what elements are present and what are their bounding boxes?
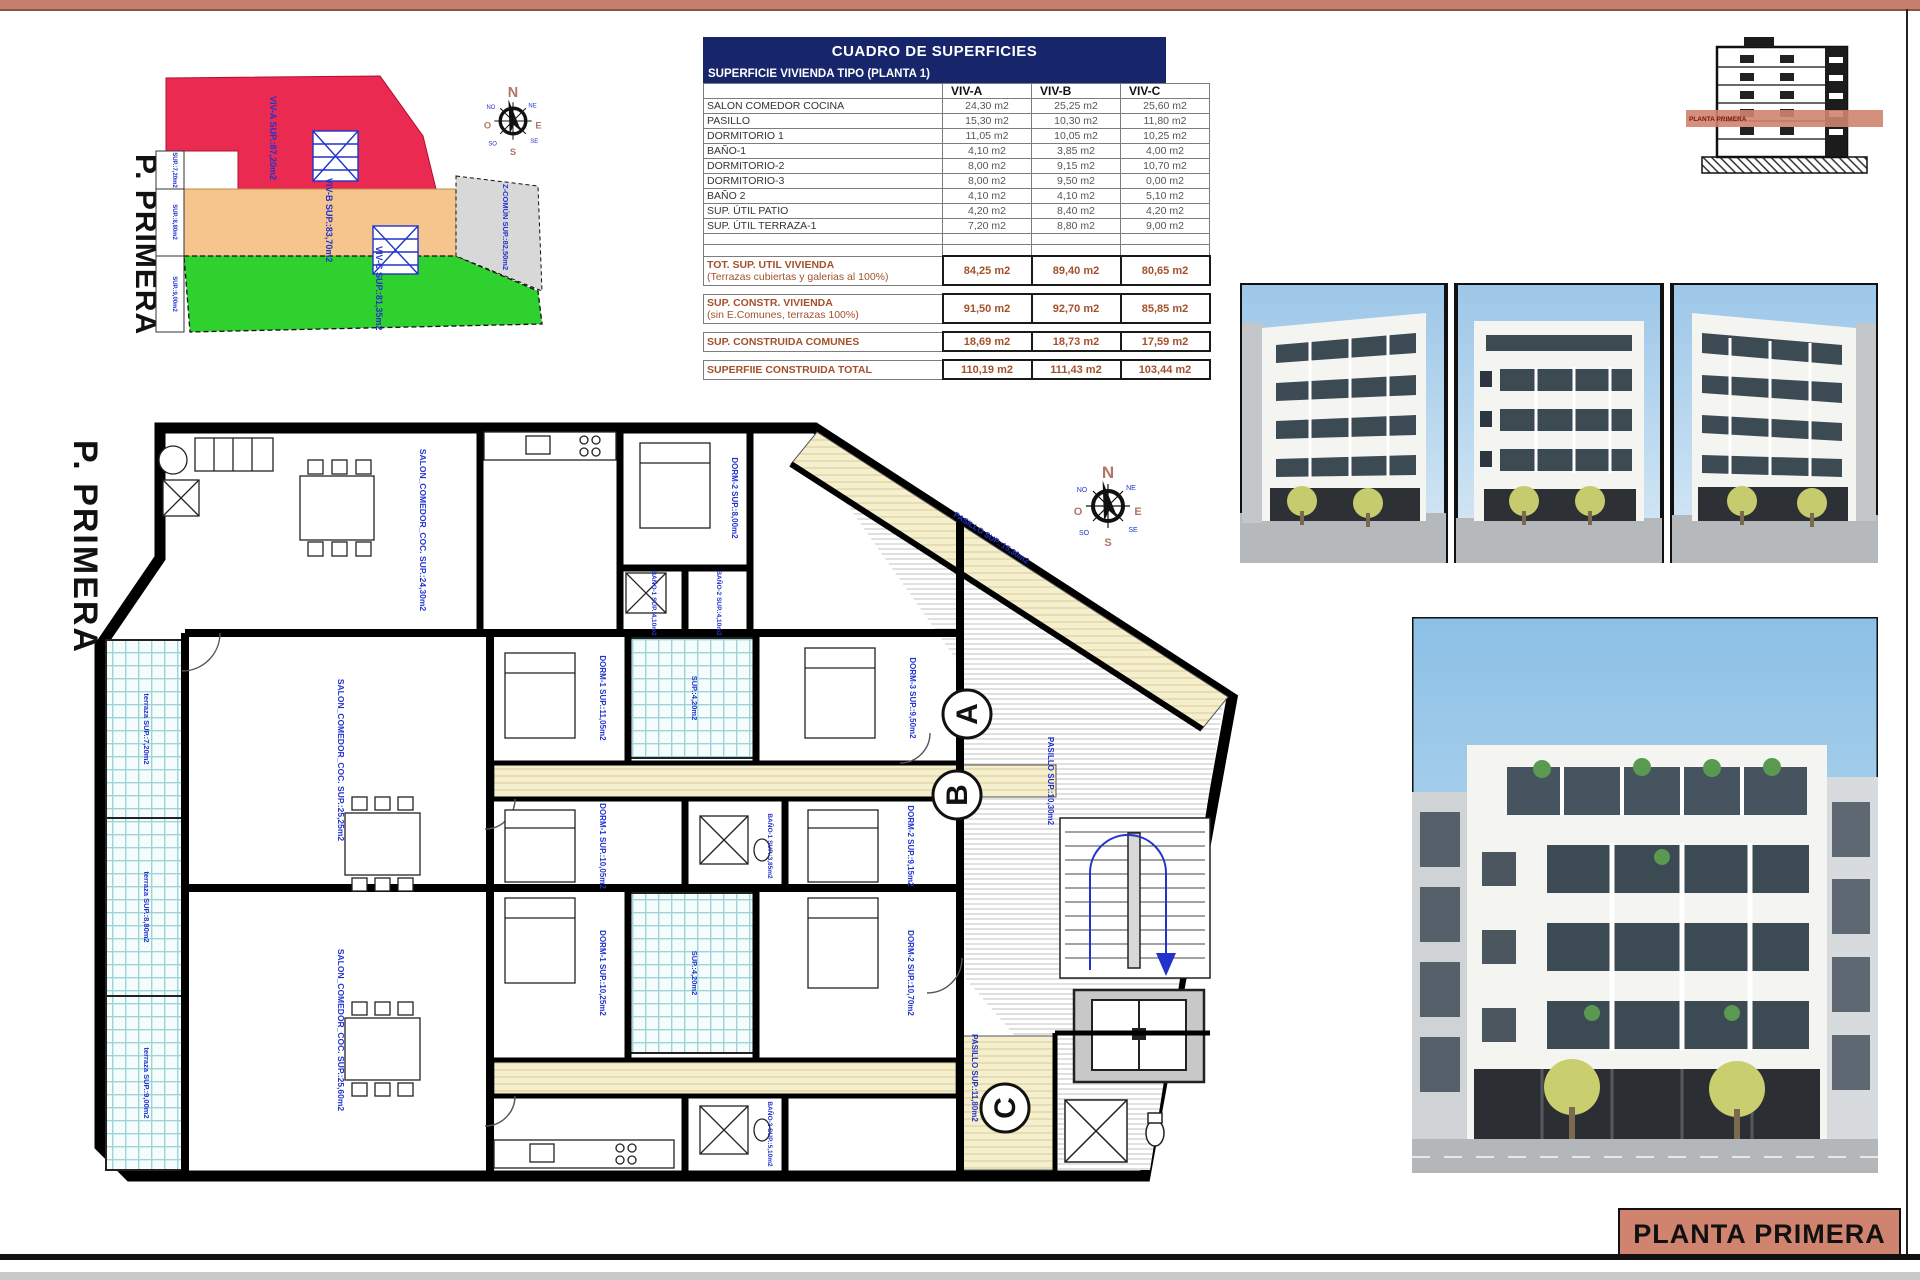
section-drawing: PLANTA PRIMERA [1682, 33, 1887, 183]
table-subtitle: SUPERFICIE VIVIENDA TIPO (PLANTA 1) [703, 65, 1166, 83]
table-row: BAÑO-14,10 m23,85 m24,00 m2 [704, 144, 1210, 159]
stair-symbol-1 [313, 131, 358, 181]
svg-text:O: O [1074, 506, 1083, 518]
table-row: PASILLO15,30 m210,30 m211,80 m2 [704, 114, 1210, 129]
title-block: PLANTA PRIMERA [1618, 1208, 1901, 1260]
table-row: DORMITORIO-28,00 m29,15 m210,70 m2 [704, 159, 1210, 174]
svg-text:DORM-2 SUP.:9,15m2: DORM-2 SUP.:9,15m2 [906, 805, 915, 887]
svg-text:SO: SO [488, 142, 497, 148]
staircase [1060, 818, 1210, 978]
zone-label-viv-b: VIV-B SUP.:83,70m2 [324, 178, 334, 262]
facade-render-center [1456, 283, 1662, 563]
svg-text:E: E [535, 121, 541, 131]
zone-label-viv-c: VIV-C SUP.:81,35m2 [374, 246, 384, 330]
col-viv-b: VIV-B [1032, 84, 1121, 99]
svg-text:SALON_COMEDOR_COC. SUP.:25,25: SALON_COMEDOR_COC. SUP.:25,25m2 [336, 679, 346, 842]
svg-text:terraza SUP.:9,00m2: terraza SUP.:9,00m2 [142, 1047, 151, 1118]
table-row: SUP. ÚTIL TERRAZA-17,20 m28,80 m29,00 m2 [704, 219, 1210, 234]
svg-text:N: N [1102, 463, 1114, 482]
svg-text:DORM-1 SUP.:11,05m2: DORM-1 SUP.:11,05m2 [598, 655, 607, 741]
key-edge-label-2: SUP.:8,80m2 [171, 204, 177, 240]
table-total-row: SUP. CONSTRUIDA COMUNES 18,69 m218,73 m2… [704, 332, 1210, 351]
svg-text:NO: NO [486, 105, 495, 111]
compass-rose: N E S O NE SE SO NO [484, 85, 542, 157]
plan-side-label: P. PRIMERA [66, 440, 104, 654]
entry-circle-a: A [951, 703, 984, 725]
svg-text:SUP.:4,20m2: SUP.:4,20m2 [690, 951, 699, 995]
svg-text:NE: NE [1126, 485, 1136, 492]
svg-text:SALON_COMEDOR_COC. SUP.:25,60: SALON_COMEDOR_COC. SUP.:25,60m2 [336, 949, 346, 1112]
entry-circle-b: B [941, 784, 974, 806]
table-total-row: SUP. CONSTR. VIVIENDA(sin E.Comunes, ter… [704, 294, 1210, 323]
table-row: DORMITORIO 111,05 m210,05 m210,25 m2 [704, 129, 1210, 144]
col-viv-a: VIV-A [943, 84, 1032, 99]
section-ground [1702, 157, 1867, 173]
svg-text:BAÑO-1 SUP.:4,10m2: BAÑO-1 SUP.:4,10m2 [650, 570, 659, 636]
svg-text:BAÑO-2 SUP.:5,10m2: BAÑO-2 SUP.:5,10m2 [766, 1101, 775, 1167]
sheet-right-border [1906, 9, 1908, 1254]
top-accent-bar [0, 0, 1920, 11]
entry-circle-c: C [989, 1097, 1022, 1119]
svg-text:BAÑO-1 SUP.:3,85m2: BAÑO-1 SUP.:3,85m2 [766, 813, 775, 879]
svg-text:SUP.:4,20m2: SUP.:4,20m2 [690, 676, 699, 720]
drawing-sheet: P. PRIMERA SUP.:7,20m2 SUP.:8,80m2 SUP.:… [0, 0, 1920, 1280]
svg-text:DORM-3 SUP.:9,50m2: DORM-3 SUP.:9,50m2 [908, 657, 917, 739]
col-viv-c: VIV-C [1121, 84, 1210, 99]
elevator [1074, 990, 1204, 1082]
compass-rose-plan: N E S O NE SE SO NO [1074, 463, 1142, 549]
svg-text:E: E [1134, 506, 1141, 518]
svg-text:NO: NO [1077, 487, 1088, 494]
table-row: SALON COMEDOR COCINA24,30 m225,25 m225,6… [704, 99, 1210, 114]
table-total-row: SUPERFIIE CONSTRUIDA TOTAL 110,19 m2111,… [704, 360, 1210, 379]
svg-text:PASILLO SUP.:11,80m2: PASILLO SUP.:11,80m2 [970, 1034, 979, 1122]
section-band-label: PLANTA PRIMERA [1689, 116, 1747, 123]
svg-text:terraza SUP.:7,20m2: terraza SUP.:7,20m2 [142, 693, 151, 764]
sheet-bottom-border [0, 1254, 1920, 1260]
svg-text:S: S [510, 147, 516, 157]
table-row: SUP. ÚTIL PATIO4,20 m28,40 m24,20 m2 [704, 204, 1210, 219]
svg-text:SO: SO [1079, 530, 1090, 537]
facade-renders-strip [1240, 283, 1878, 563]
zone-viv-a [166, 76, 436, 189]
facade-render-large [1412, 617, 1878, 1173]
facade-render-right [1672, 283, 1878, 563]
floor-plan: P. PRIMERA [60, 418, 1240, 1183]
corridor-c [494, 1062, 956, 1094]
svg-text:SALON_COMEDOR_COC. SUP.:24,30: SALON_COMEDOR_COC. SUP.:24,30m2 [418, 449, 428, 612]
svg-text:BAÑO-2 SUP.:4,10m2: BAÑO-2 SUP.:4,10m2 [715, 570, 724, 636]
key-plan: P. PRIMERA SUP.:7,20m2 SUP.:8,80m2 SUP.:… [118, 66, 568, 366]
svg-text:DORM-1 SUP.:10,25m2: DORM-1 SUP.:10,25m2 [598, 930, 607, 1016]
svg-text:SE: SE [1128, 527, 1138, 534]
svg-text:PASILLO SUP.:10,30m2: PASILLO SUP.:10,30m2 [1046, 737, 1055, 826]
zone-label-comun: Z-COMÚN SUP.:82,50m2 [501, 184, 510, 270]
svg-text:NE: NE [528, 103, 536, 109]
svg-text:SE: SE [530, 139, 538, 145]
zone-label-viv-a: VIV-A SUP.:87,20m2 [268, 96, 278, 180]
key-plan-terrace-cells [156, 151, 184, 332]
table-row: BAÑO 24,10 m24,10 m25,10 m2 [704, 189, 1210, 204]
table-total-row: TOT. SUP. UTIL VIVIENDA(Terrazas cubiert… [704, 256, 1210, 285]
svg-text:terraza SUP.:8,80m2: terraza SUP.:8,80m2 [142, 871, 151, 942]
svg-text:DORM-2 SUP.:10,70m2: DORM-2 SUP.:10,70m2 [906, 930, 915, 1016]
svg-text:DORM-2 SUP.:8,00m2: DORM-2 SUP.:8,00m2 [730, 457, 739, 539]
key-edge-label-3: SUP.:9,00m2 [171, 276, 177, 312]
svg-text:N: N [508, 85, 518, 101]
svg-text:S: S [1104, 537, 1111, 549]
svg-text:DORM-1 SUP.:10,05m2: DORM-1 SUP.:10,05m2 [598, 803, 607, 889]
facade-render-left [1240, 283, 1446, 563]
svg-text:O: O [484, 121, 491, 131]
title-block-text: PLANTA PRIMERA [1633, 1219, 1886, 1250]
table-row: DORMITORIO-38,00 m29,50 m20,00 m2 [704, 174, 1210, 189]
table-title: CUADRO DE SUPERFICIES [703, 37, 1166, 65]
key-edge-label-1: SUP.:7,20m2 [171, 152, 177, 188]
bottom-gray-strip [0, 1272, 1920, 1280]
surfaces-table: CUADRO DE SUPERFICIES SUPERFICIE VIVIEND… [703, 37, 1166, 380]
